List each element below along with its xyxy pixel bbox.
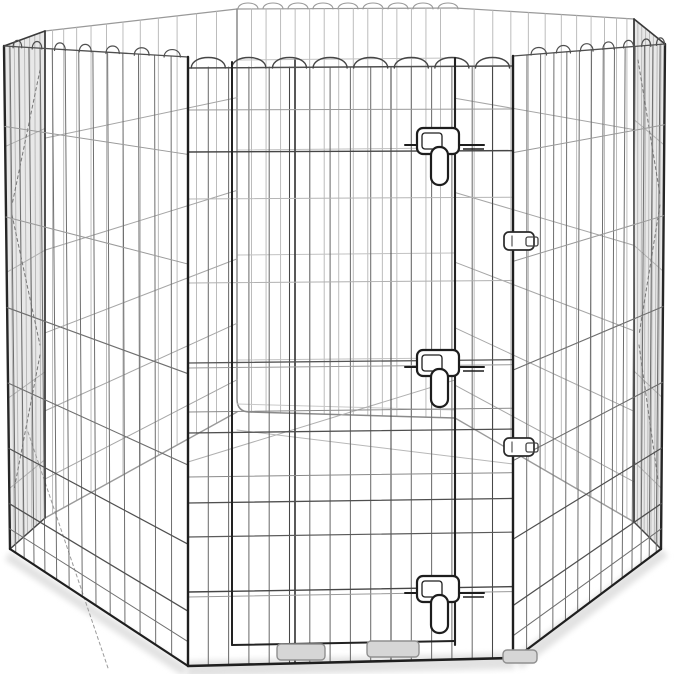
panel-connector-clip xyxy=(504,438,538,456)
latch-handle xyxy=(431,147,448,185)
floor-tab xyxy=(277,644,325,660)
floor-tab xyxy=(503,650,537,663)
back-right-panel-mesh xyxy=(455,9,634,522)
pet-exercise-pen-product-photo xyxy=(0,0,679,674)
ground-shadow xyxy=(5,552,188,674)
panel-connector-clip xyxy=(504,232,538,250)
product-photo-canvas xyxy=(0,0,679,674)
floor-tab xyxy=(367,641,419,657)
latch-handle xyxy=(431,369,448,407)
back-rim xyxy=(45,3,634,31)
latch-handle xyxy=(431,595,448,633)
